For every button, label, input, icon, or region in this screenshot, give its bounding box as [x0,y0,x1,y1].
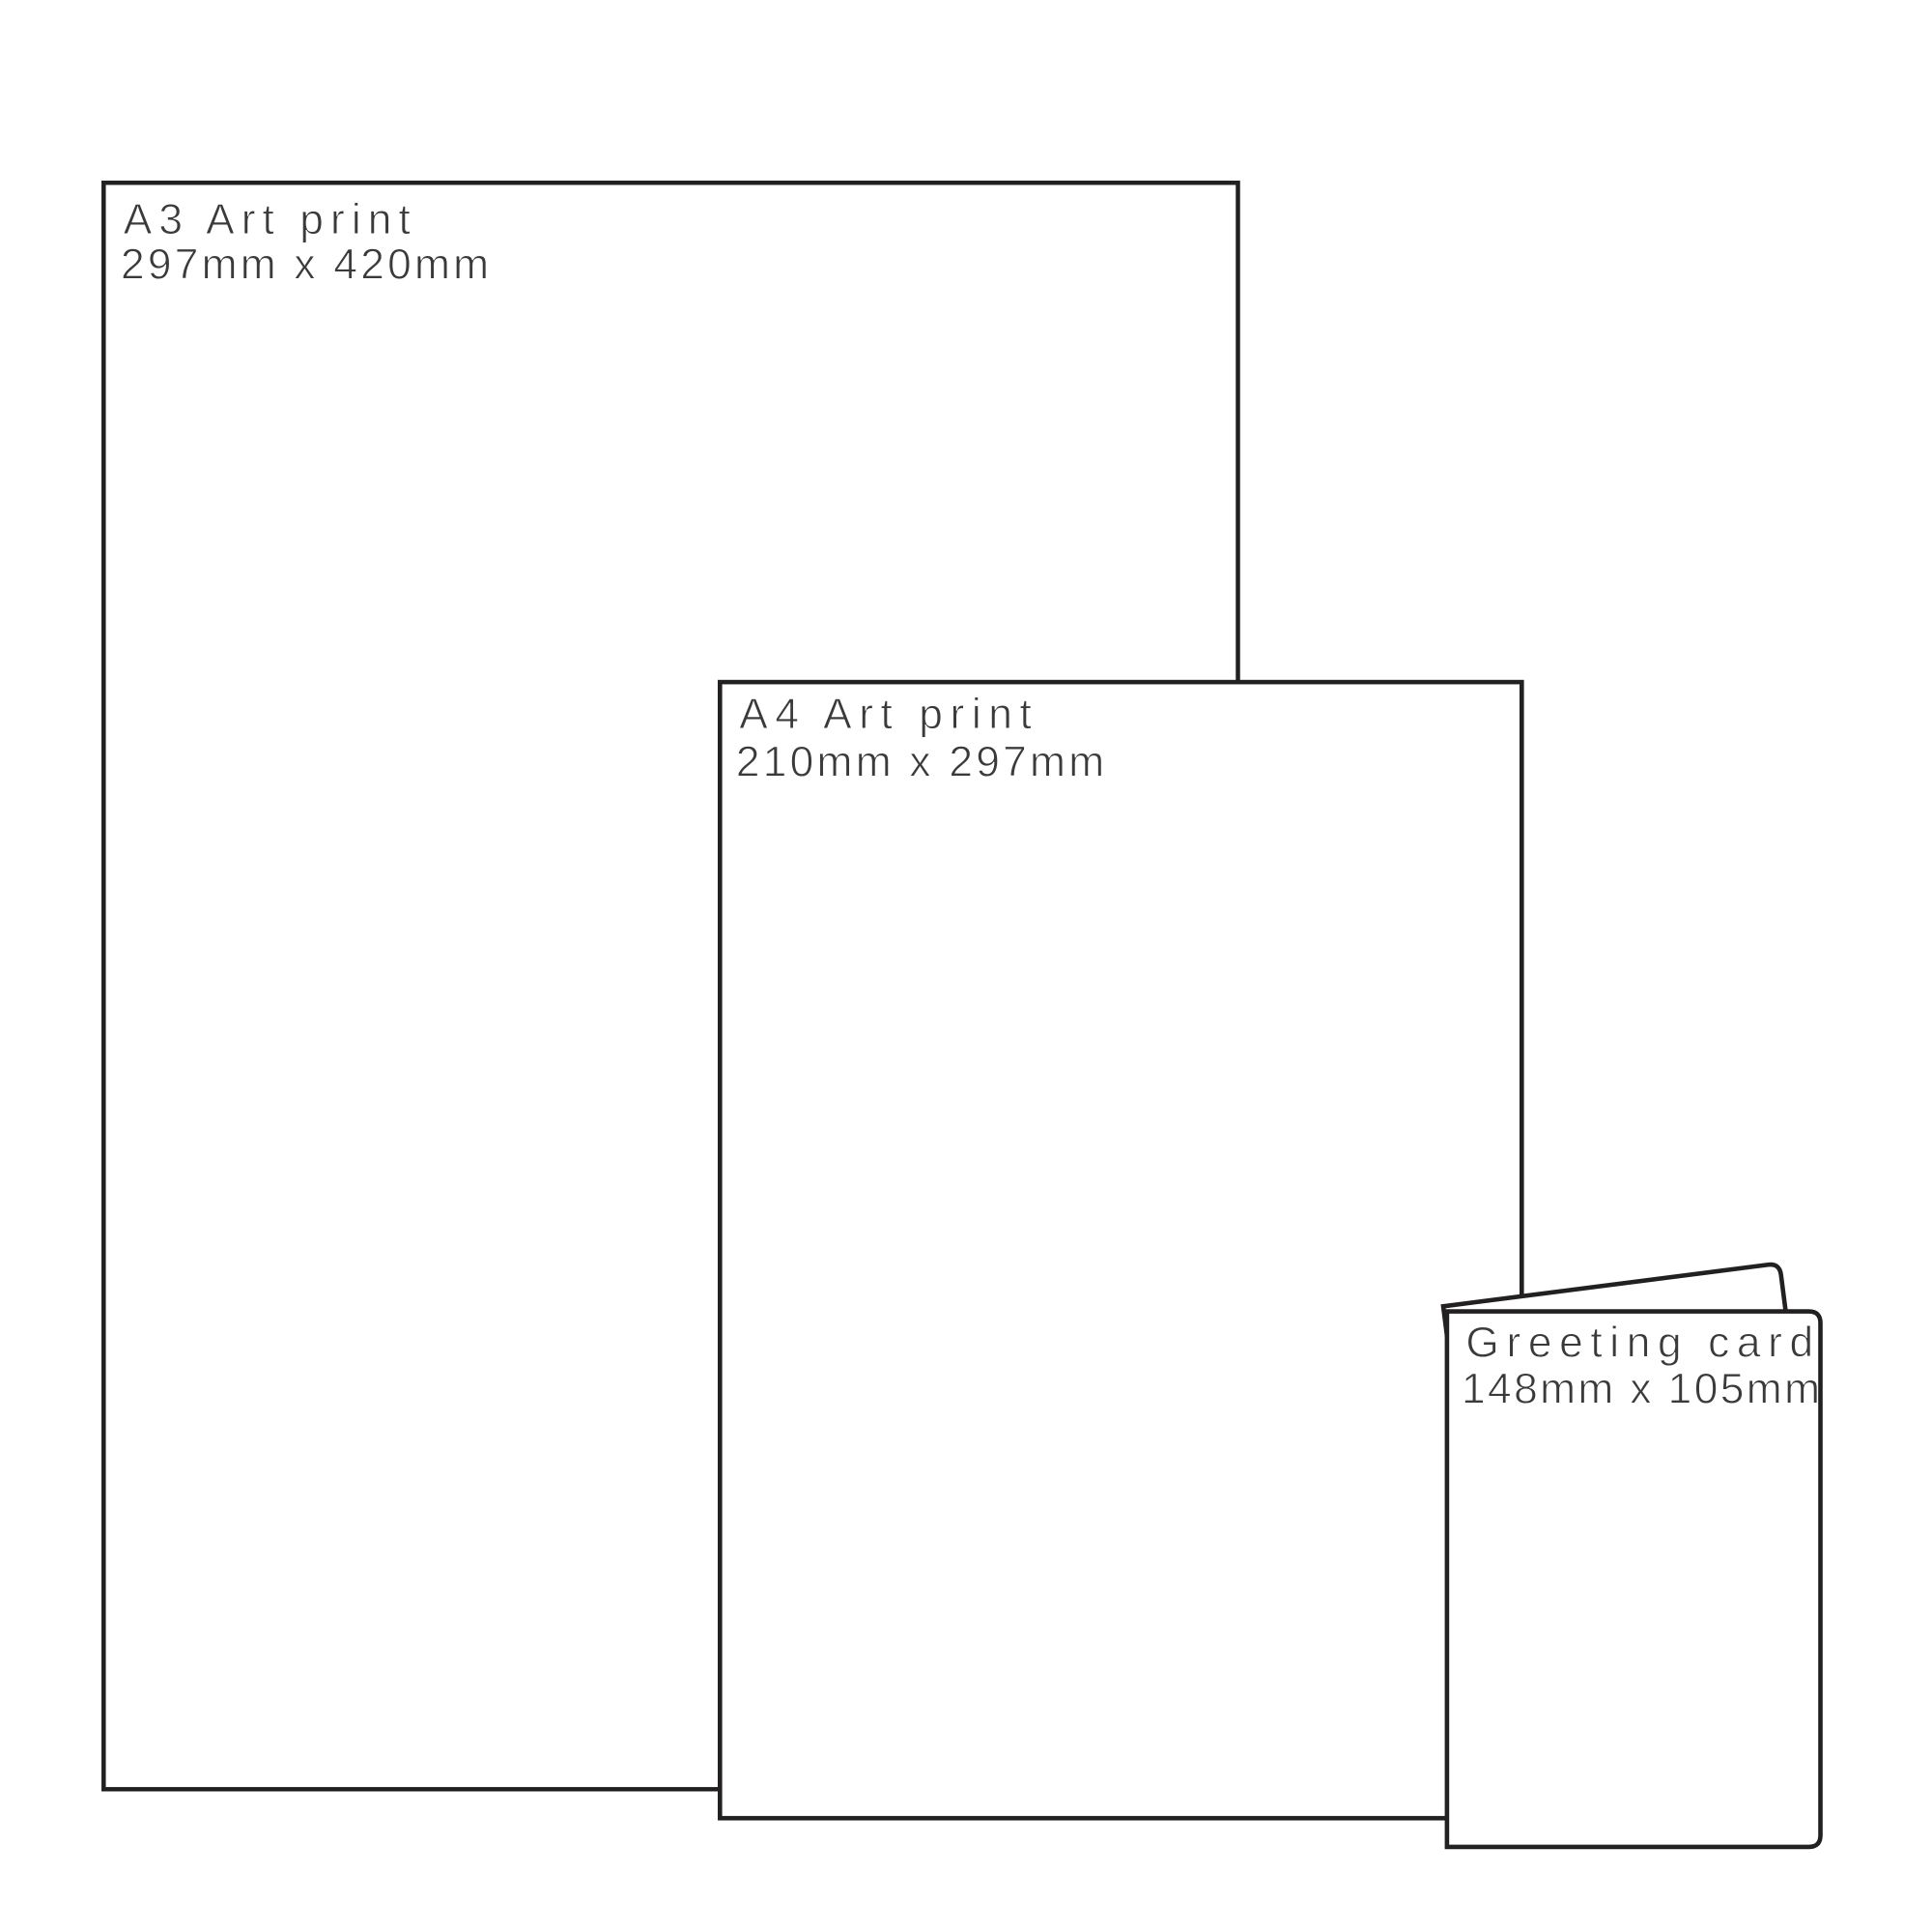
svg-text:297mm x 420mm: 297mm x 420mm [121,241,489,289]
svg-text:A3 Art print: A3 Art print [124,196,411,243]
svg-text:148mm x 105mm: 148mm x 105mm [1462,1366,1820,1413]
svg-text:210mm x 297mm: 210mm x 297mm [736,738,1104,785]
svg-text:A4 Art print: A4 Art print [739,691,1032,738]
